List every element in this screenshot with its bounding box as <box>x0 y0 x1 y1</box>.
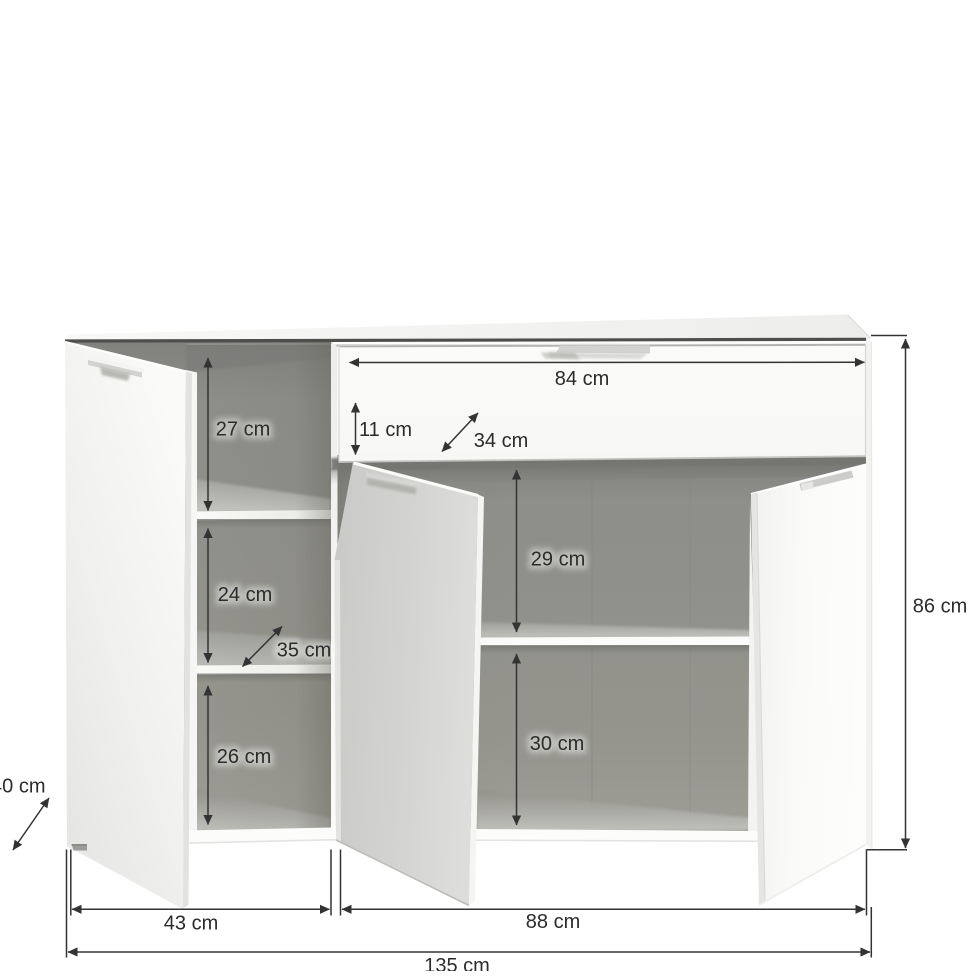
svg-text:135 cm: 135 cm <box>424 955 490 971</box>
svg-text:34 cm: 34 cm <box>474 430 528 452</box>
svg-text:40 cm: 40 cm <box>0 776 46 798</box>
svg-text:86 cm: 86 cm <box>913 596 967 618</box>
svg-text:84 cm: 84 cm <box>555 368 609 390</box>
svg-text:35 cm: 35 cm <box>277 640 331 662</box>
svg-text:24 cm: 24 cm <box>218 584 272 606</box>
svg-text:11 cm: 11 cm <box>359 419 412 441</box>
svg-text:26 cm: 26 cm <box>217 746 271 768</box>
svg-text:27 cm: 27 cm <box>216 419 270 441</box>
svg-text:29 cm: 29 cm <box>531 549 585 571</box>
svg-text:88 cm: 88 cm <box>526 911 580 933</box>
svg-text:30 cm: 30 cm <box>530 733 584 755</box>
svg-text:43 cm: 43 cm <box>164 913 218 935</box>
